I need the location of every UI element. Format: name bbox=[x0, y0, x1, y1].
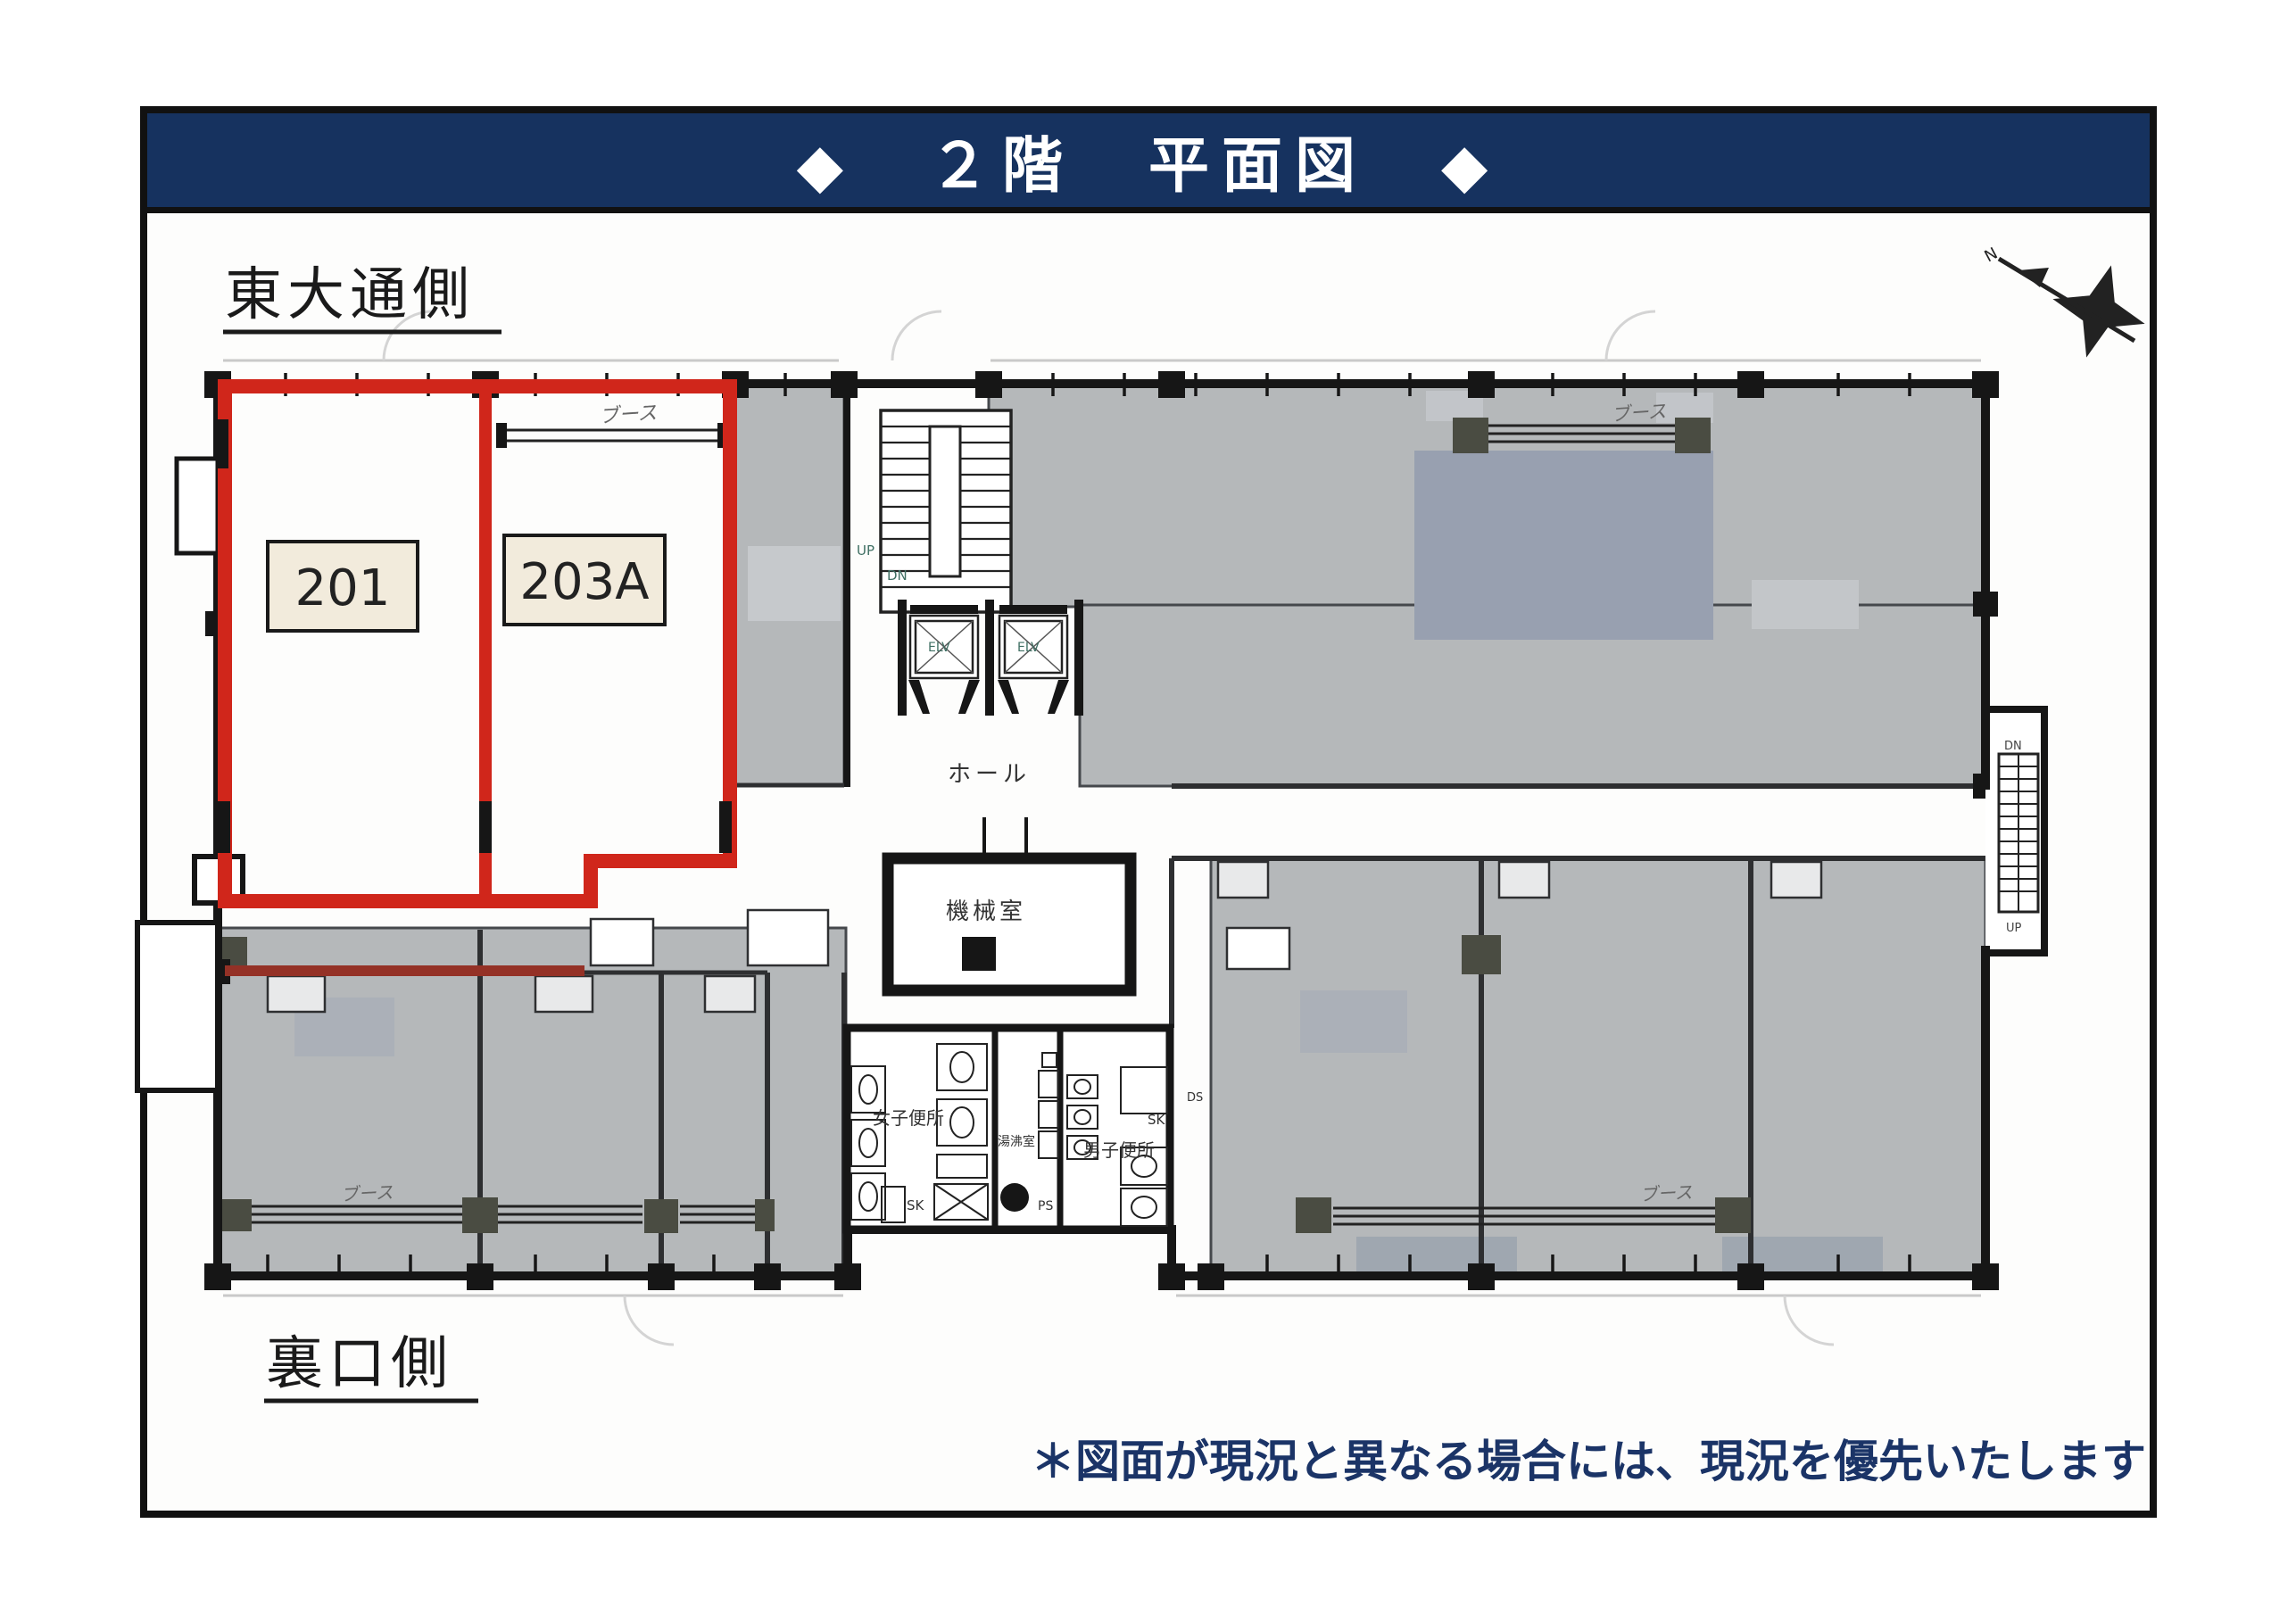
stair-up-label-right: UP bbox=[2006, 922, 2022, 935]
hot-water-room-label: 湯沸室 bbox=[998, 1134, 1035, 1149]
core-staircase: UP DN bbox=[857, 410, 1011, 612]
compass-icon: N bbox=[1981, 244, 2143, 357]
room-tags: 201 203A bbox=[268, 535, 665, 631]
dark-booth-area bbox=[1414, 451, 1713, 640]
womens-toilet-label: 女子便所 bbox=[873, 1107, 944, 1129]
sk-label-right: SK bbox=[1148, 1112, 1166, 1128]
ps-label: PS bbox=[1038, 1199, 1053, 1213]
sk-label-left: SK bbox=[907, 1197, 925, 1213]
compass-north-label: N bbox=[1981, 244, 2001, 267]
leased-area-outline bbox=[218, 386, 732, 971]
room-203a-label: 203A bbox=[519, 553, 649, 611]
mens-toilet-label: 男子便所 bbox=[1083, 1139, 1155, 1161]
hall-label: ホール bbox=[948, 761, 1031, 788]
stair-dn-label-core: DN bbox=[887, 567, 908, 584]
stair-dn-label-right: DN bbox=[2004, 740, 2022, 753]
right-staircase: DN UP bbox=[1999, 740, 2038, 935]
disclaimer-note: ＊図面が現況と異なる場合には、現況を優先いたします bbox=[1031, 1436, 2146, 1487]
booth-label-bottom-left: ブース bbox=[340, 1181, 394, 1205]
elevators: ELV ELV bbox=[898, 600, 1083, 716]
ds-label: DS bbox=[1187, 1091, 1203, 1105]
booth-label-top-right: ブース bbox=[1611, 401, 1667, 426]
scanned-floor-plan-page: ◆ ２階 平面図 ◆ bbox=[0, 0, 2296, 1623]
stair-up-label-core: UP bbox=[857, 542, 874, 559]
elevator-label-2: ELV bbox=[1017, 641, 1040, 655]
booth-label-bottom-right: ブース bbox=[1639, 1181, 1693, 1205]
label-back-entrance-side: 裏口側 bbox=[266, 1331, 453, 1397]
floor-plan-svg: UP DN ELV ELV ホール bbox=[0, 0, 2296, 1623]
label-east-street-side: 東大通側 bbox=[225, 262, 475, 328]
machine-room-label: 機械室 bbox=[946, 898, 1026, 925]
booth-label-203a: ブース bbox=[599, 402, 658, 428]
room-201-label: 201 bbox=[295, 559, 391, 617]
machine-room: ホール 機械室 bbox=[888, 761, 1131, 990]
toilet-block: 女子便所 男子便所 湯沸室 SK SK PS DS bbox=[847, 1028, 1203, 1230]
elevator-label-1: ELV bbox=[928, 641, 950, 655]
